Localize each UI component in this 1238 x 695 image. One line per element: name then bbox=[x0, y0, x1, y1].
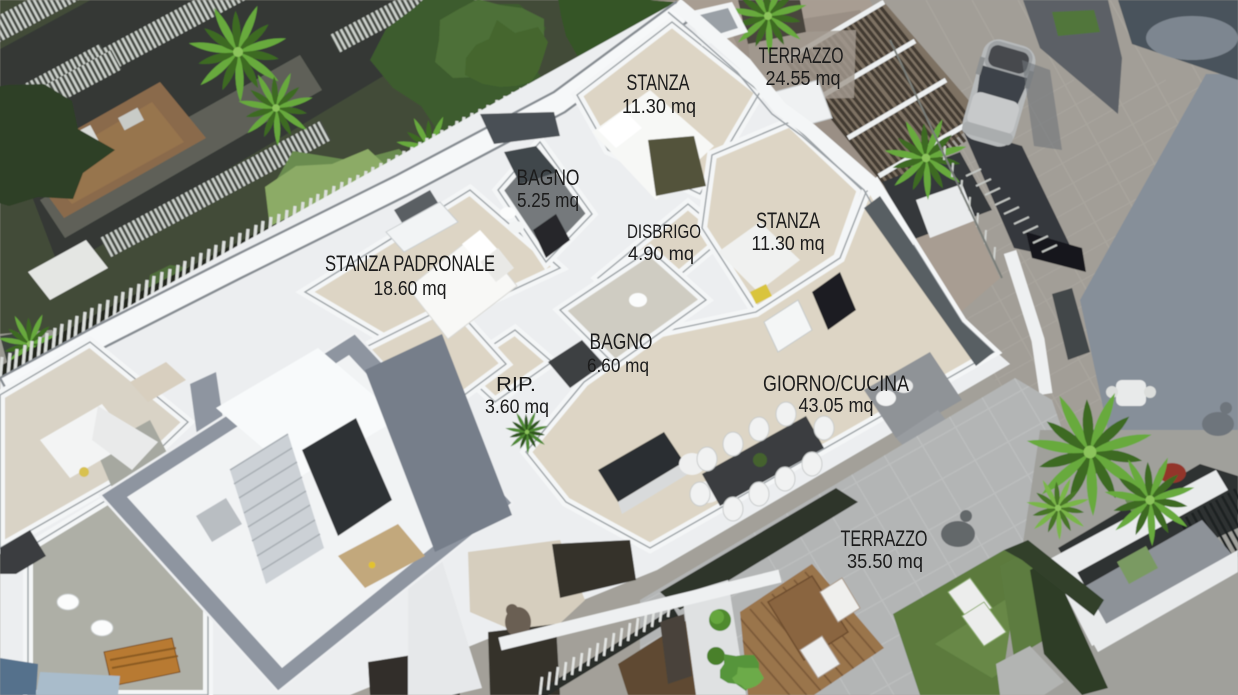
svg-text:35.50 mq: 35.50 mq bbox=[847, 551, 923, 573]
svg-text:BAGNO: BAGNO bbox=[590, 329, 653, 354]
svg-text:STANZA: STANZA bbox=[756, 208, 820, 233]
svg-text:5.25 mq: 5.25 mq bbox=[517, 190, 579, 212]
svg-text:3.60 mq: 3.60 mq bbox=[485, 397, 549, 418]
svg-text:BAGNO: BAGNO bbox=[517, 165, 580, 190]
svg-text:STANZA PADRONALE: STANZA PADRONALE bbox=[325, 251, 495, 276]
svg-text:18.60 mq: 18.60 mq bbox=[374, 278, 447, 300]
svg-text:STANZA: STANZA bbox=[627, 70, 690, 95]
svg-text:43.05 mq: 43.05 mq bbox=[799, 395, 874, 417]
svg-text:4.90 mq: 4.90 mq bbox=[628, 244, 694, 265]
svg-text:6.60 mq: 6.60 mq bbox=[587, 356, 649, 377]
svg-text:GIORNO/CUCINA: GIORNO/CUCINA bbox=[763, 371, 909, 396]
svg-text:TERRAZZO: TERRAZZO bbox=[759, 43, 844, 68]
svg-text:TERRAZZO: TERRAZZO bbox=[841, 526, 928, 551]
svg-text:DISBRIGO: DISBRIGO bbox=[627, 222, 701, 243]
svg-text:11.30 mq: 11.30 mq bbox=[752, 233, 825, 255]
svg-text:24.55 mq: 24.55 mq bbox=[766, 68, 841, 90]
svg-text:RIP.: RIP. bbox=[496, 374, 536, 396]
svg-text:11.30 mq: 11.30 mq bbox=[622, 96, 696, 118]
